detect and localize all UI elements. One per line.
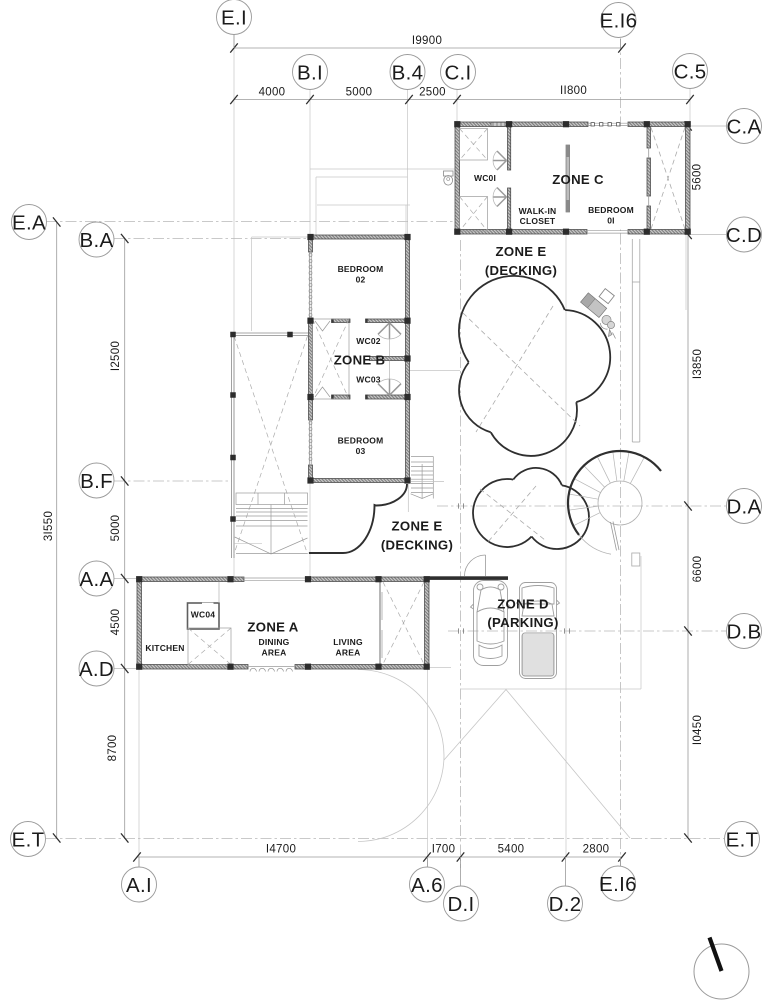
svg-text:WC04: WC04 — [191, 610, 215, 620]
svg-text:ZONE B: ZONE B — [334, 353, 386, 368]
svg-text:B.4: B.4 — [392, 61, 424, 84]
svg-text:5400: 5400 — [498, 844, 525, 856]
svg-text:C.5: C.5 — [674, 60, 707, 83]
svg-text:BEDROOM: BEDROOM — [338, 436, 384, 446]
svg-text:02: 02 — [356, 275, 366, 285]
svg-text:ZONE D: ZONE D — [497, 597, 549, 612]
svg-text:BEDROOM: BEDROOM — [588, 205, 634, 215]
svg-text:I2500: I2500 — [110, 341, 122, 371]
svg-text:E.T: E.T — [726, 828, 759, 851]
svg-text:I0450: I0450 — [692, 715, 704, 745]
svg-text:WC02: WC02 — [356, 336, 380, 346]
svg-text:I9900: I9900 — [412, 35, 442, 47]
svg-text:ZONE A: ZONE A — [247, 620, 298, 635]
svg-text:AREA: AREA — [262, 648, 287, 658]
svg-text:2800: 2800 — [583, 844, 610, 856]
svg-text:AREA: AREA — [336, 648, 361, 658]
svg-text:B.A: B.A — [80, 229, 114, 252]
svg-text:3I550: 3I550 — [43, 511, 55, 541]
svg-text:DINING: DINING — [259, 637, 290, 647]
svg-text:A.I: A.I — [126, 874, 152, 897]
svg-text:II800: II800 — [560, 85, 587, 97]
svg-text:WC0I: WC0I — [474, 173, 496, 183]
svg-text:ZONE C: ZONE C — [552, 172, 604, 187]
svg-text:C.D: C.D — [726, 224, 762, 247]
svg-text:LIVING: LIVING — [333, 637, 363, 647]
svg-text:0I: 0I — [607, 216, 615, 226]
svg-text:4500: 4500 — [110, 609, 122, 636]
svg-text:D.A: D.A — [726, 495, 761, 518]
svg-text:E.A: E.A — [12, 211, 46, 234]
svg-text:6600: 6600 — [692, 556, 704, 583]
svg-text:(DECKING): (DECKING) — [381, 538, 453, 553]
svg-text:8700: 8700 — [107, 735, 119, 762]
svg-text:KITCHEN: KITCHEN — [145, 643, 184, 653]
svg-text:03: 03 — [356, 446, 366, 456]
svg-text:5000: 5000 — [110, 515, 122, 542]
svg-text:E.I6: E.I6 — [600, 9, 638, 32]
svg-text:A.D: A.D — [79, 658, 114, 681]
svg-text:2500: 2500 — [419, 87, 446, 99]
svg-text:BEDROOM: BEDROOM — [338, 264, 384, 274]
svg-text:I4700: I4700 — [266, 844, 296, 856]
svg-text:I700: I700 — [432, 844, 456, 856]
svg-text:5000: 5000 — [346, 87, 373, 99]
svg-text:E.T: E.T — [12, 828, 45, 851]
svg-text:E.I6: E.I6 — [599, 873, 637, 896]
svg-text:C.A: C.A — [726, 115, 761, 138]
svg-text:D.I: D.I — [447, 893, 474, 916]
svg-text:B.F: B.F — [80, 470, 113, 493]
svg-text:E.I: E.I — [221, 6, 247, 29]
svg-text:(DECKING): (DECKING) — [485, 263, 557, 278]
svg-text:D.2: D.2 — [549, 893, 582, 916]
svg-text:A.6: A.6 — [411, 874, 443, 897]
svg-text:4000: 4000 — [259, 87, 286, 99]
svg-text:A.A: A.A — [80, 568, 114, 591]
svg-text:ZONE E: ZONE E — [392, 519, 443, 534]
svg-text:(PARKING): (PARKING) — [487, 615, 558, 630]
svg-text:WALK-IN: WALK-IN — [519, 206, 557, 216]
svg-text:5600: 5600 — [692, 164, 704, 191]
svg-text:D.B: D.B — [726, 620, 761, 643]
svg-text:CLOSET: CLOSET — [520, 216, 556, 226]
svg-text:C.I: C.I — [444, 61, 471, 84]
svg-text:I3850: I3850 — [692, 349, 704, 379]
svg-text:B.I: B.I — [297, 61, 323, 84]
svg-text:WC03: WC03 — [356, 375, 380, 385]
svg-text:ZONE E: ZONE E — [496, 244, 547, 259]
